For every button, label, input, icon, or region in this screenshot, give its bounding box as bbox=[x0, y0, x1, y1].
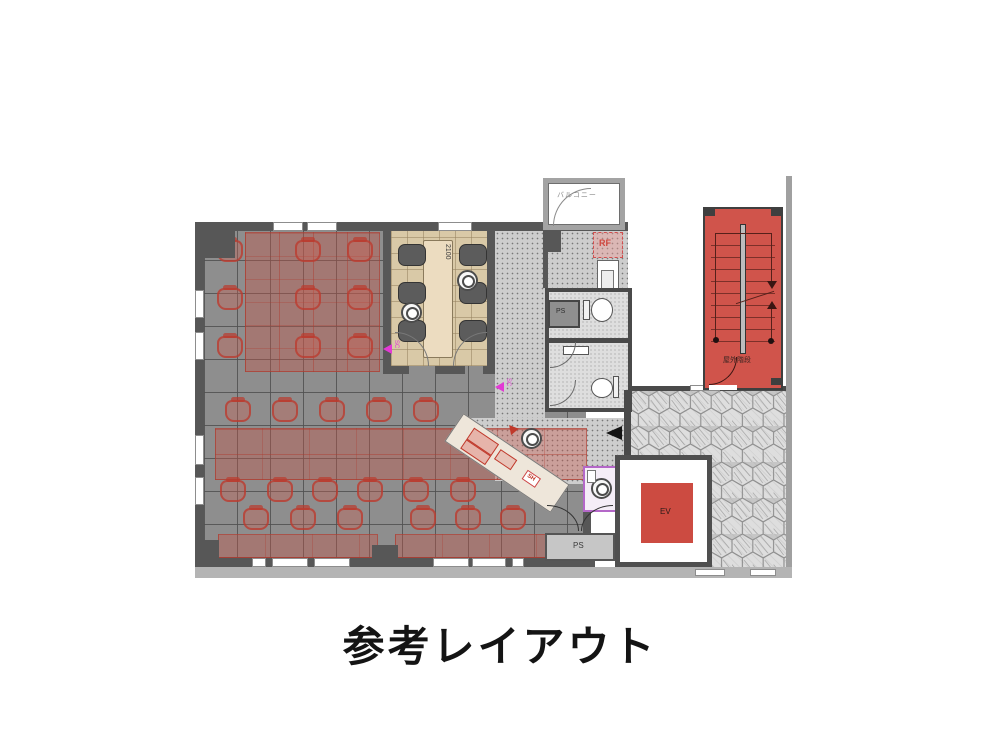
office-chair bbox=[272, 400, 298, 422]
wall-left bbox=[195, 222, 204, 567]
page-title: 参考レイアウト bbox=[0, 613, 1000, 674]
office-chair bbox=[347, 240, 373, 262]
toilet-tank bbox=[613, 376, 619, 398]
office-chair bbox=[455, 508, 481, 530]
meeting-room-wall-right bbox=[487, 231, 495, 374]
sensor-marker-icon bbox=[383, 344, 392, 354]
floor-plan: 2100 SC SC バルコニー RF PS bbox=[195, 172, 795, 582]
office-chair bbox=[347, 288, 373, 310]
stair-door-arc bbox=[709, 357, 737, 385]
elevator-label: EV bbox=[660, 507, 671, 516]
office-chair bbox=[217, 336, 243, 358]
toilet-tank bbox=[583, 300, 590, 320]
office-chair bbox=[319, 400, 345, 422]
office-chair bbox=[295, 336, 321, 358]
page: 2100 SC SC バルコニー RF PS bbox=[0, 0, 1000, 750]
powder-fixture bbox=[587, 470, 596, 483]
stair-up-arrowhead bbox=[767, 301, 777, 309]
office-chair bbox=[357, 480, 383, 502]
window bbox=[438, 222, 472, 231]
wall-bottom-left-step bbox=[195, 540, 219, 567]
wall-entry-right bbox=[624, 390, 631, 462]
toilet-bowl bbox=[591, 298, 613, 322]
window bbox=[195, 332, 204, 360]
office-chair bbox=[337, 508, 363, 530]
window bbox=[314, 558, 350, 567]
person-figure bbox=[521, 428, 542, 449]
office-chair bbox=[295, 240, 321, 262]
stair-center-rail bbox=[740, 224, 746, 354]
desk-row-bottom-right bbox=[395, 534, 565, 558]
counter-equipment-sketch bbox=[494, 449, 517, 470]
stair-landing-dot bbox=[768, 338, 774, 344]
meeting-room-wall-bottom-seg bbox=[483, 366, 495, 374]
office-chair bbox=[347, 336, 373, 358]
sensor-marker-label: SC bbox=[505, 378, 511, 386]
stair-down-arrowhead bbox=[767, 281, 777, 289]
outdoor-staircase: 屋外階段 bbox=[703, 207, 783, 390]
meeting-chair bbox=[398, 244, 426, 266]
office-chair bbox=[312, 480, 338, 502]
office-chair bbox=[403, 480, 429, 502]
shelf-label: SH bbox=[526, 473, 536, 483]
stair-flow-line bbox=[771, 233, 772, 283]
window bbox=[695, 569, 725, 576]
stair-corner-tab bbox=[771, 209, 781, 216]
office-chair bbox=[366, 400, 392, 422]
entry-arrow-icon bbox=[606, 426, 622, 440]
window bbox=[750, 569, 776, 576]
window bbox=[252, 558, 266, 567]
shelf-tag: SH bbox=[522, 470, 541, 488]
office-chair bbox=[500, 508, 526, 530]
window bbox=[307, 222, 337, 231]
window bbox=[195, 435, 204, 465]
office-chair bbox=[413, 400, 439, 422]
meeting-chair bbox=[398, 282, 426, 304]
office-chair bbox=[295, 288, 321, 310]
window bbox=[195, 477, 204, 505]
wall-bottom-notch bbox=[372, 545, 398, 567]
office-chair bbox=[220, 480, 246, 502]
stair-flow-line bbox=[715, 233, 716, 341]
office-chair bbox=[243, 508, 269, 530]
stair-landing-dot bbox=[713, 337, 719, 343]
window bbox=[272, 558, 308, 567]
toilet-bowl bbox=[591, 378, 613, 398]
stair-flow-line bbox=[771, 309, 772, 341]
pipe-shaft-bottom-label: PS bbox=[573, 541, 584, 550]
window bbox=[472, 558, 506, 567]
person-figure bbox=[457, 270, 478, 291]
office-chair bbox=[290, 508, 316, 530]
fridge-label: RF bbox=[599, 238, 611, 248]
office-chair bbox=[267, 480, 293, 502]
office-chair bbox=[410, 508, 436, 530]
office-chair bbox=[450, 480, 476, 502]
window bbox=[273, 222, 303, 231]
stair-corner-tab bbox=[771, 378, 781, 385]
meeting-table-dimension-label: 2100 bbox=[444, 244, 451, 260]
pipe-shaft-top-label: PS bbox=[556, 308, 565, 315]
window bbox=[195, 290, 204, 318]
sensor-marker-icon bbox=[495, 382, 504, 392]
person-figure bbox=[401, 302, 422, 323]
sensor-marker-label: SC bbox=[393, 340, 399, 348]
stair-door-gap bbox=[709, 385, 737, 390]
wall-corner-step bbox=[195, 222, 235, 258]
desk-row-bottom-left bbox=[218, 534, 378, 558]
wall-kitchenette-left bbox=[543, 231, 548, 288]
window bbox=[512, 558, 524, 567]
kitchen-sink bbox=[601, 270, 614, 290]
meeting-room-wall-bottom-seg bbox=[383, 366, 409, 374]
stair-corner-tab bbox=[705, 209, 715, 216]
meeting-chair bbox=[459, 244, 487, 266]
office-chair bbox=[225, 400, 251, 422]
stair-flow-line bbox=[715, 233, 771, 234]
meeting-room-wall-bottom-seg bbox=[435, 366, 465, 374]
window bbox=[433, 558, 469, 567]
right-boundary-wall bbox=[786, 176, 792, 576]
elevator-room: EV bbox=[615, 455, 712, 567]
office-chair bbox=[217, 288, 243, 310]
